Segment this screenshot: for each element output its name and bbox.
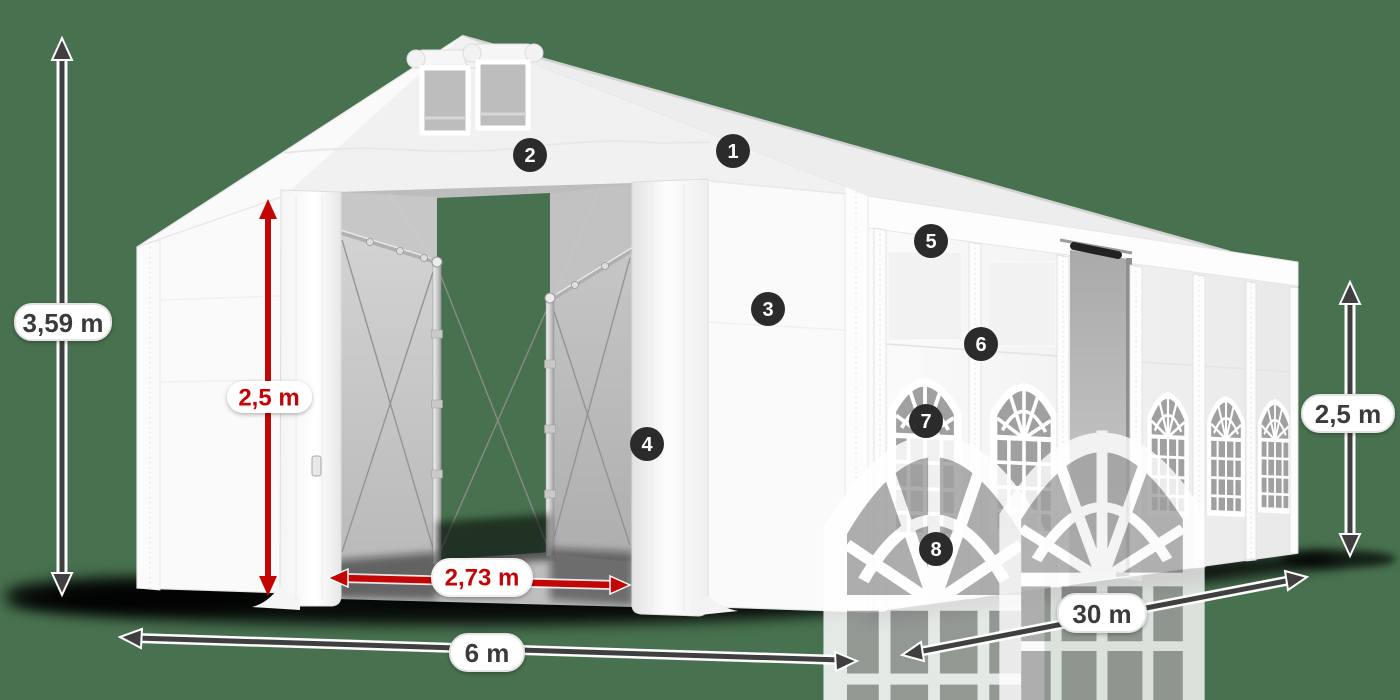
callout-7-number: 7 bbox=[920, 411, 931, 433]
interior-window-right bbox=[1010, 431, 1193, 700]
tent-illustration-svg: 1 2 3 4 5 6 7 8 bbox=[0, 0, 1400, 700]
door-handle bbox=[312, 456, 321, 476]
tent-dimension-diagram: 1 2 3 4 5 6 7 8 bbox=[0, 0, 1400, 700]
total-height-label: 3,59 m bbox=[23, 308, 104, 338]
callout-5[interactable]: 5 bbox=[914, 224, 948, 258]
length-label: 30 m bbox=[1072, 599, 1131, 629]
callout-3[interactable]: 3 bbox=[751, 292, 785, 326]
door-height-label: 2,5 m bbox=[238, 385, 299, 412]
side-height-label: 2,5 m bbox=[1315, 399, 1382, 429]
callout-6-number: 6 bbox=[975, 334, 986, 356]
callout-8-number: 8 bbox=[930, 539, 941, 561]
callout-2[interactable]: 2 bbox=[513, 138, 547, 172]
side-window bbox=[1209, 395, 1243, 514]
callout-5-number: 5 bbox=[925, 231, 936, 253]
interior-opening-see-through bbox=[437, 193, 550, 560]
callout-3-number: 3 bbox=[762, 299, 773, 321]
callout-8[interactable]: 8 bbox=[919, 532, 953, 566]
callout-2-number: 2 bbox=[524, 145, 535, 167]
callout-6[interactable]: 6 bbox=[964, 327, 998, 361]
side-window bbox=[1260, 398, 1290, 511]
callout-4[interactable]: 4 bbox=[630, 427, 664, 461]
door-width-label: 2,73 m bbox=[445, 565, 520, 592]
callout-7[interactable]: 7 bbox=[909, 404, 943, 438]
callout-1[interactable]: 1 bbox=[716, 134, 750, 168]
front-left-corner-post bbox=[137, 240, 160, 590]
callout-1-number: 1 bbox=[727, 141, 738, 163]
callout-4-number: 4 bbox=[641, 434, 653, 456]
width-label: 6 m bbox=[465, 638, 510, 668]
